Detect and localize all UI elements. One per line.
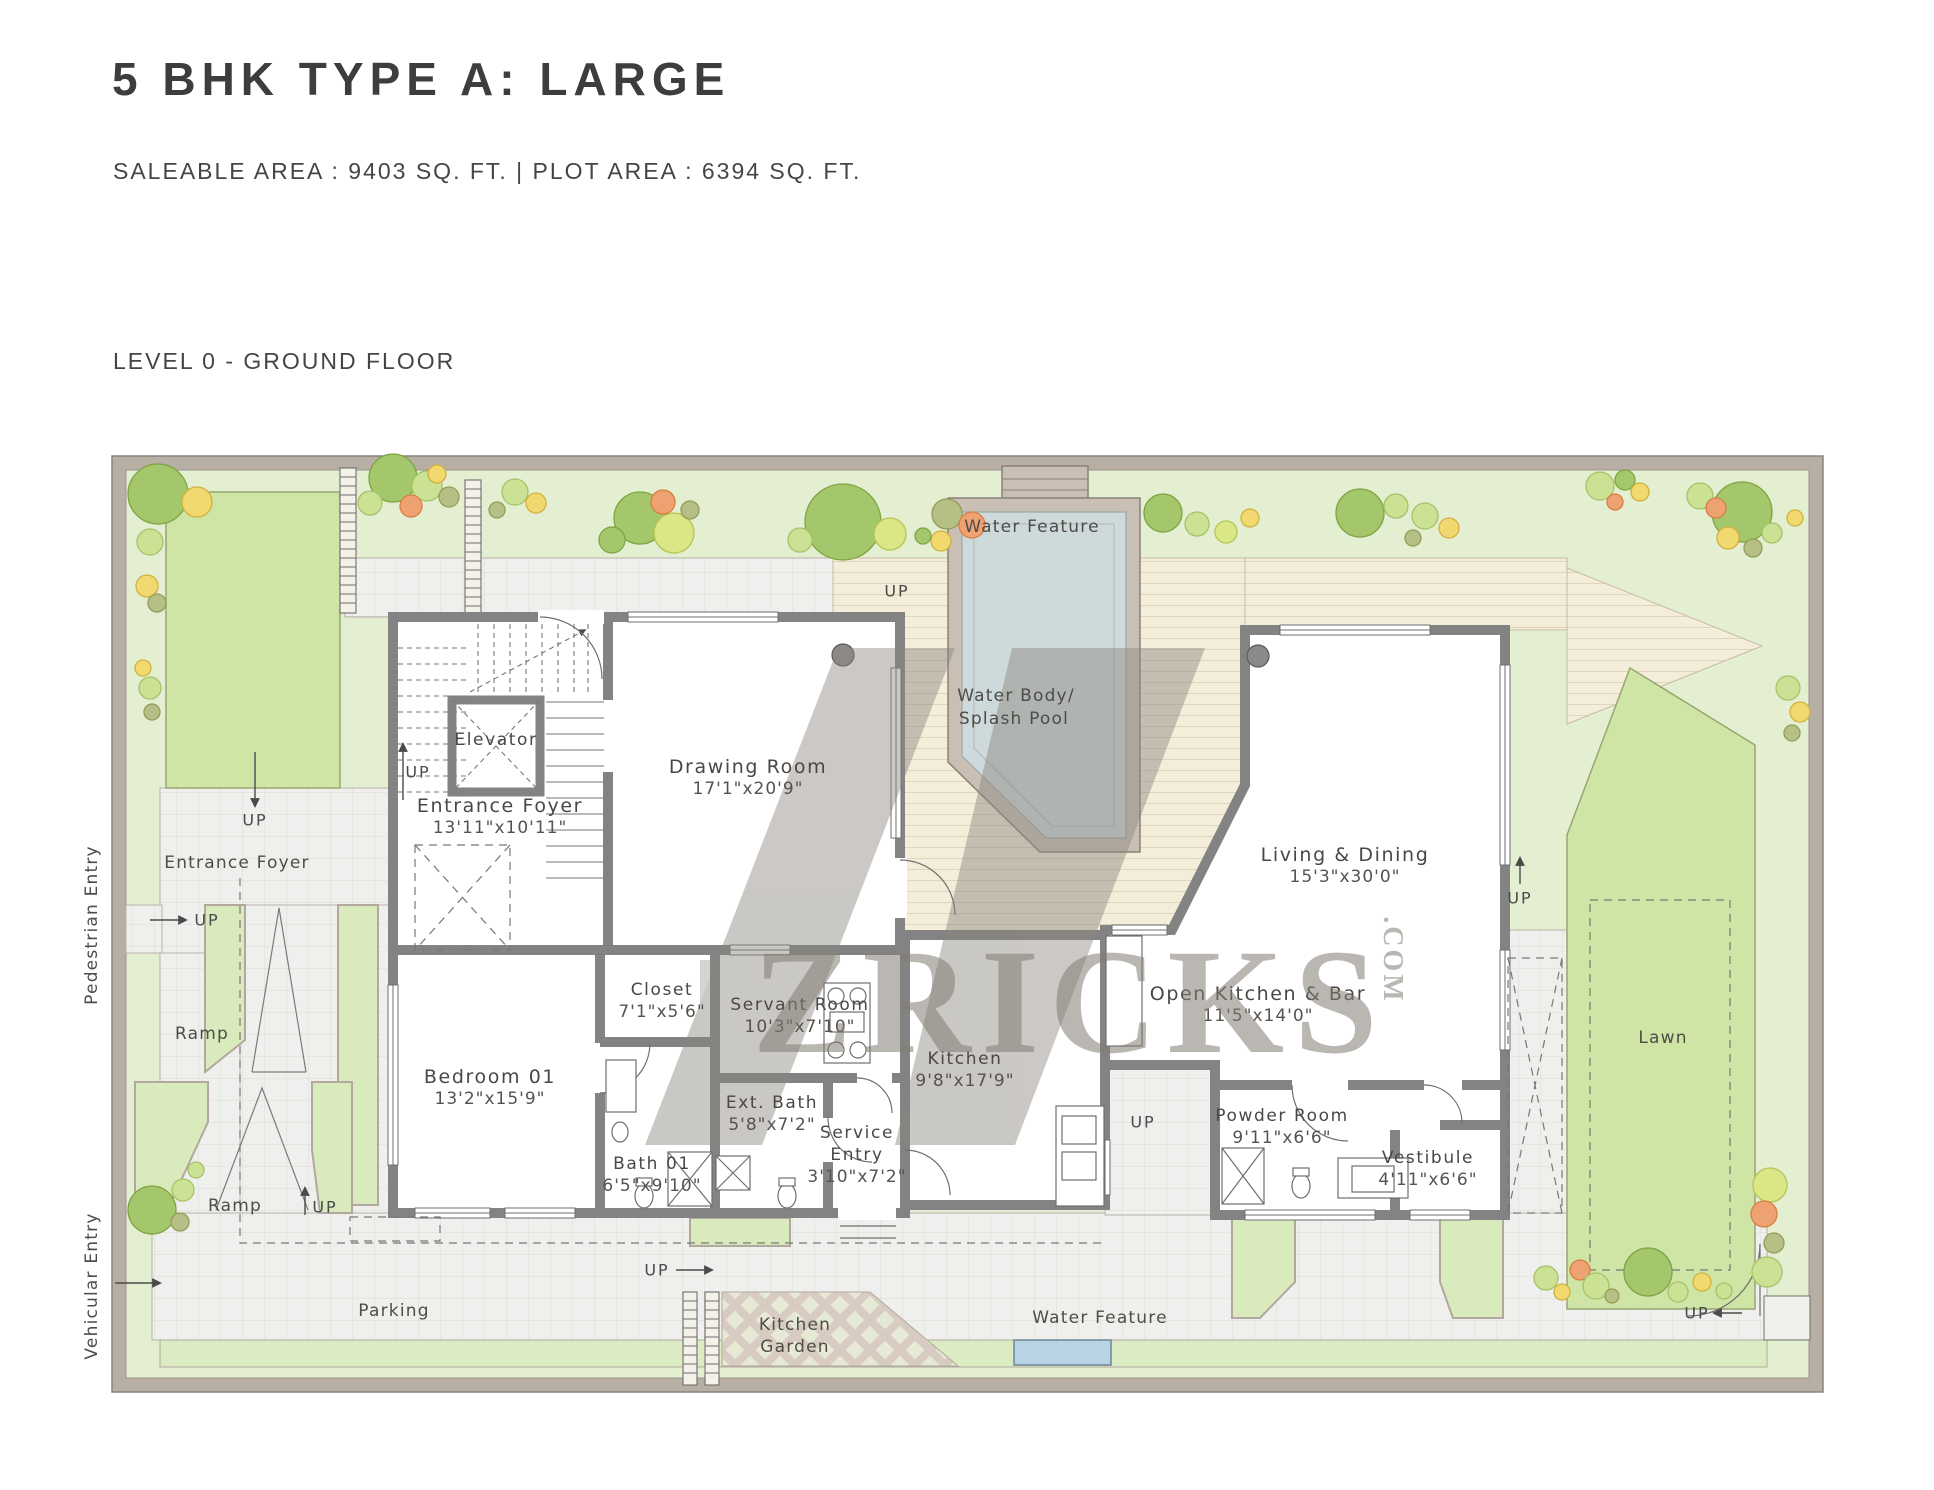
water-body-label-2: Splash Pool: [959, 709, 1069, 729]
up-label-stair: UP: [405, 763, 430, 782]
room-label-powder-room: Powder Room9'11"x6'6": [1215, 1105, 1349, 1149]
up-label-deck: UP: [884, 582, 909, 601]
ramp-upper-label: Ramp: [175, 1024, 229, 1044]
watermark-suffix: .COM: [1376, 916, 1408, 1003]
up-label-living-east: UP: [1507, 889, 1532, 908]
room-label-ext-bath: Ext. Bath5'8"x7'2": [726, 1092, 818, 1136]
parking-label: Parking: [358, 1301, 429, 1321]
water-feature-top-label: Water Feature: [964, 517, 1100, 537]
floor-plan-drawing: [0, 0, 1934, 1490]
room-label-service-entry: Service Entry 3'10"x7'2": [807, 1122, 906, 1188]
room-label-closet: Closet7'1"x5'6": [618, 979, 705, 1023]
room-label-elevator: Elevator: [454, 729, 537, 751]
floor-plan-page: 5 BHK TYPE A: LARGE SALEABLE AREA : 9403…: [0, 0, 1934, 1490]
room-label-drawing-room: Drawing Room17'1"x20'9": [669, 756, 827, 800]
column-icon: [1247, 645, 1269, 667]
toilet-icon: [778, 1184, 796, 1208]
up-label-court: UP: [1130, 1113, 1155, 1132]
entrance-foyer-outside-label: Entrance Foyer: [164, 853, 309, 873]
bottom-green-strip: [160, 1340, 1767, 1367]
up-label-garden-steps: UP: [242, 811, 267, 830]
ramp-lower-label: Ramp: [208, 1196, 262, 1216]
up-label-gate: UP: [1684, 1304, 1709, 1323]
room-label-living-dining: Living & Dining15'3"x30'0": [1261, 844, 1430, 888]
kitchen-garden-label-1: Kitchen: [759, 1315, 831, 1335]
vanity-icon: [606, 1060, 636, 1112]
water-feature-strip: [1014, 1340, 1111, 1365]
lawn-label: Lawn: [1638, 1028, 1687, 1048]
up-label-parking-steps: UP: [644, 1261, 669, 1280]
up-label-ramp: UP: [312, 1198, 337, 1217]
up-label-pedestrian: UP: [194, 911, 219, 930]
room-label-bath-01: Bath 016'5"x9'10": [602, 1153, 701, 1197]
kitchen-garden-label-2: Garden: [760, 1337, 830, 1357]
pedestrian-entry-label: Pedestrian Entry: [82, 845, 102, 1005]
room-label-bedroom-01: Bedroom 0113'2"x15'9": [424, 1066, 556, 1110]
toilet-icon: [1292, 1174, 1310, 1198]
water-body-label-1: Water Body/: [957, 686, 1075, 706]
room-label-entrance-foyer: Entrance Foyer13'11"x10'11": [417, 795, 583, 839]
watermark-brand: ZRICKS: [752, 916, 1387, 1088]
room-label-vestibule: Vestibule4'11"x6'6": [1378, 1147, 1477, 1191]
vehicular-entry-label: Vehicular Entry: [82, 1212, 102, 1359]
water-feature-bottom-label: Water Feature: [1032, 1308, 1168, 1328]
